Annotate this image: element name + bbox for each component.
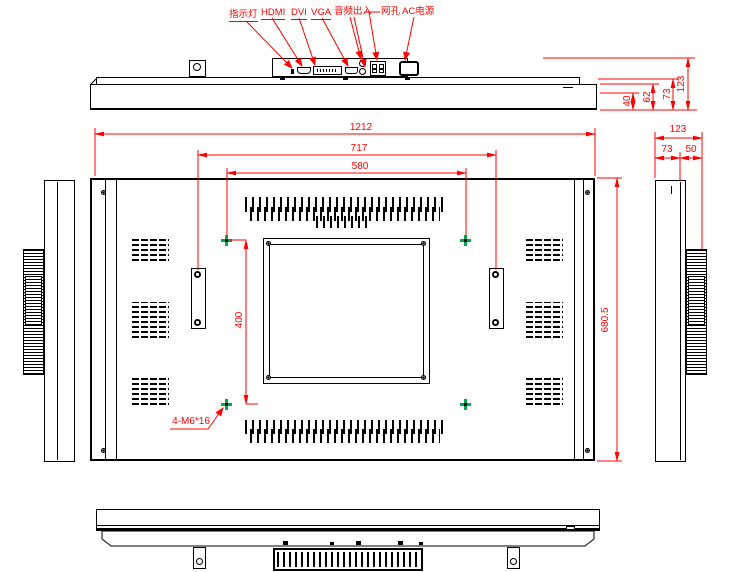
right-side-inner-line	[680, 182, 681, 460]
top-view-body	[90, 84, 597, 110]
vesa-mount-point	[221, 399, 232, 410]
vent-slots	[526, 238, 563, 261]
right-side-detail	[671, 186, 672, 194]
vga-port	[345, 67, 358, 74]
bottom-tabs	[283, 541, 423, 545]
vent-slots	[132, 302, 169, 338]
vesa-mount-point	[221, 235, 232, 246]
handle-screw	[492, 319, 499, 326]
dim-side-vent-depth: 50	[685, 145, 696, 155]
vesa-mount-point	[460, 399, 471, 410]
ethernet-pin	[372, 64, 377, 73]
left-side-body	[44, 180, 75, 462]
ac-power-socket	[399, 61, 419, 76]
access-plate	[263, 238, 430, 384]
bottom-slot	[566, 526, 575, 530]
dim-side-body-depth: 73	[661, 145, 672, 155]
handle-screw	[194, 271, 201, 278]
dim-vesa-height: 400	[235, 312, 245, 329]
left-side-vent-inner	[25, 276, 42, 326]
vent-grille-bottom	[250, 429, 440, 443]
bracket-hole	[196, 558, 203, 565]
right-frame-line	[574, 180, 575, 459]
right-side-body	[655, 180, 686, 462]
dim-vesa-width: 580	[352, 162, 369, 172]
dim-top-step2: 62	[643, 91, 653, 102]
panel-foot	[405, 77, 410, 80]
vent-slots	[132, 238, 169, 261]
ethernet-pin	[379, 64, 384, 73]
callout-indicator-label: 指示灯	[229, 10, 258, 22]
callout-ethernet-label: 网孔	[381, 7, 400, 17]
vent-grille-top	[316, 216, 372, 228]
bottom-speaker-grille	[273, 548, 423, 571]
screw	[585, 448, 590, 453]
dim-top-depth: 123	[677, 76, 687, 93]
callout-audio-label: 音频出入	[334, 7, 372, 17]
indicator-led	[291, 69, 294, 74]
screw	[101, 448, 106, 453]
dim-top-step3: 73	[663, 88, 673, 99]
audio-jack-in	[359, 68, 366, 75]
access-plate-inner	[269, 244, 424, 378]
top-view-rear-strip	[96, 77, 580, 85]
plate-screw	[266, 241, 271, 246]
dim-handle-spacing: 717	[351, 144, 368, 154]
plate-screw	[266, 375, 271, 380]
vesa-mount-point	[460, 235, 471, 246]
vent-slots	[526, 302, 563, 338]
left-frame-line	[116, 180, 117, 459]
callout-vga-label: VGA	[311, 8, 331, 20]
dim-overall-width: 1212	[350, 123, 372, 133]
bottom-view-inner-line	[97, 525, 599, 526]
left-frame-line	[105, 180, 106, 459]
left-side-inner-line	[57, 182, 58, 460]
bracket-hole	[510, 558, 517, 565]
vent-slots	[526, 377, 563, 405]
right-frame-line	[583, 180, 584, 459]
panel-foot	[280, 77, 285, 80]
top-view-step-line	[563, 87, 573, 88]
bottom-front-section	[102, 531, 594, 546]
handle-screw	[194, 319, 201, 326]
audio-jack-out	[359, 60, 366, 67]
bottom-view-body	[96, 509, 600, 531]
plate-screw	[421, 241, 426, 246]
callout-hdmi-label: HDMI	[261, 8, 285, 20]
right-side-vent-inner	[688, 276, 705, 326]
dim-side-overall-depth: 123	[670, 125, 687, 135]
dim-overall-height: 680.5	[601, 307, 611, 332]
dvi-port	[313, 66, 342, 75]
handle-screw	[492, 271, 499, 278]
plate-screw	[421, 375, 426, 380]
screw	[585, 190, 590, 195]
bracket-hole	[193, 63, 201, 71]
screw	[101, 190, 106, 195]
vesa-hole-note: 4-M6*16	[172, 417, 210, 427]
vent-slots	[132, 377, 169, 405]
hdmi-port	[297, 67, 311, 74]
technical-drawing-canvas: 指示灯 HDMI DVI VGA 音频出入 网孔 AC电源 1212 717 5…	[0, 0, 740, 572]
callout-dvi-label: DVI	[291, 8, 307, 20]
panel-foot	[343, 77, 348, 80]
callout-ac-power-label: AC电源	[402, 7, 434, 17]
dim-top-step1: 40	[623, 95, 633, 106]
